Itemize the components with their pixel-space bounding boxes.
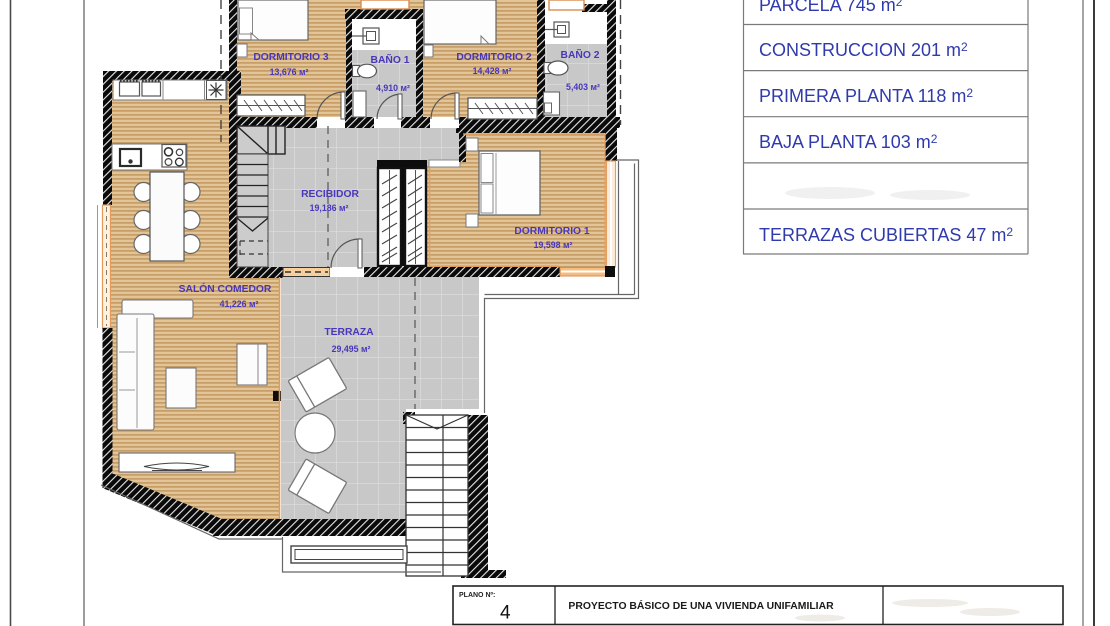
- svg-text:DORMITORIO 2: DORMITORIO 2: [456, 52, 532, 63]
- svg-text:4,910 м²: 4,910 м²: [376, 83, 410, 93]
- svg-text:CONSTRUCCION 201 m2: CONSTRUCCION 201 m2: [759, 40, 968, 60]
- svg-text:BAJA PLANTA 103 m2: BAJA PLANTA 103 m2: [759, 132, 938, 152]
- svg-text:BAÑO 1: BAÑO 1: [371, 53, 410, 66]
- svg-text:41,226 м²: 41,226 м²: [220, 299, 259, 309]
- svg-text:PARCELA 745 m2: PARCELA 745 m2: [759, 0, 903, 15]
- svg-text:PROYECTO BÁSICO DE UNA VIVIEND: PROYECTO BÁSICO DE UNA VIVIENDA UNIFAMIL…: [568, 599, 834, 612]
- svg-text:DORMITORIO 1: DORMITORIO 1: [514, 226, 590, 237]
- svg-text:DORMITORIO 3: DORMITORIO 3: [253, 52, 329, 63]
- svg-text:PRIMERA PLANTA 118 m2: PRIMERA PLANTA 118 m2: [759, 86, 973, 106]
- svg-text:TERRAZAS CUBIERTAS 47 m2: TERRAZAS CUBIERTAS 47 m2: [759, 225, 1013, 245]
- svg-text:4: 4: [500, 603, 511, 624]
- svg-text:BAÑO 2: BAÑO 2: [561, 48, 600, 61]
- svg-text:TERRAZA: TERRAZA: [324, 327, 374, 338]
- svg-text:14,428 м²: 14,428 м²: [473, 66, 512, 76]
- svg-text:5,403 м²: 5,403 м²: [566, 82, 600, 92]
- svg-text:19,598 м²: 19,598 м²: [534, 240, 573, 250]
- svg-text:SALÓN COMEDOR: SALÓN COMEDOR: [179, 282, 272, 295]
- svg-text:PLANO Nº:: PLANO Nº:: [459, 592, 495, 599]
- svg-text:19,186 м²: 19,186 м²: [310, 203, 349, 213]
- svg-text:RECIBIDOR: RECIBIDOR: [301, 189, 359, 200]
- svg-text:29,495 м²: 29,495 м²: [332, 344, 371, 354]
- svg-text:13,676 м²: 13,676 м²: [270, 67, 309, 77]
